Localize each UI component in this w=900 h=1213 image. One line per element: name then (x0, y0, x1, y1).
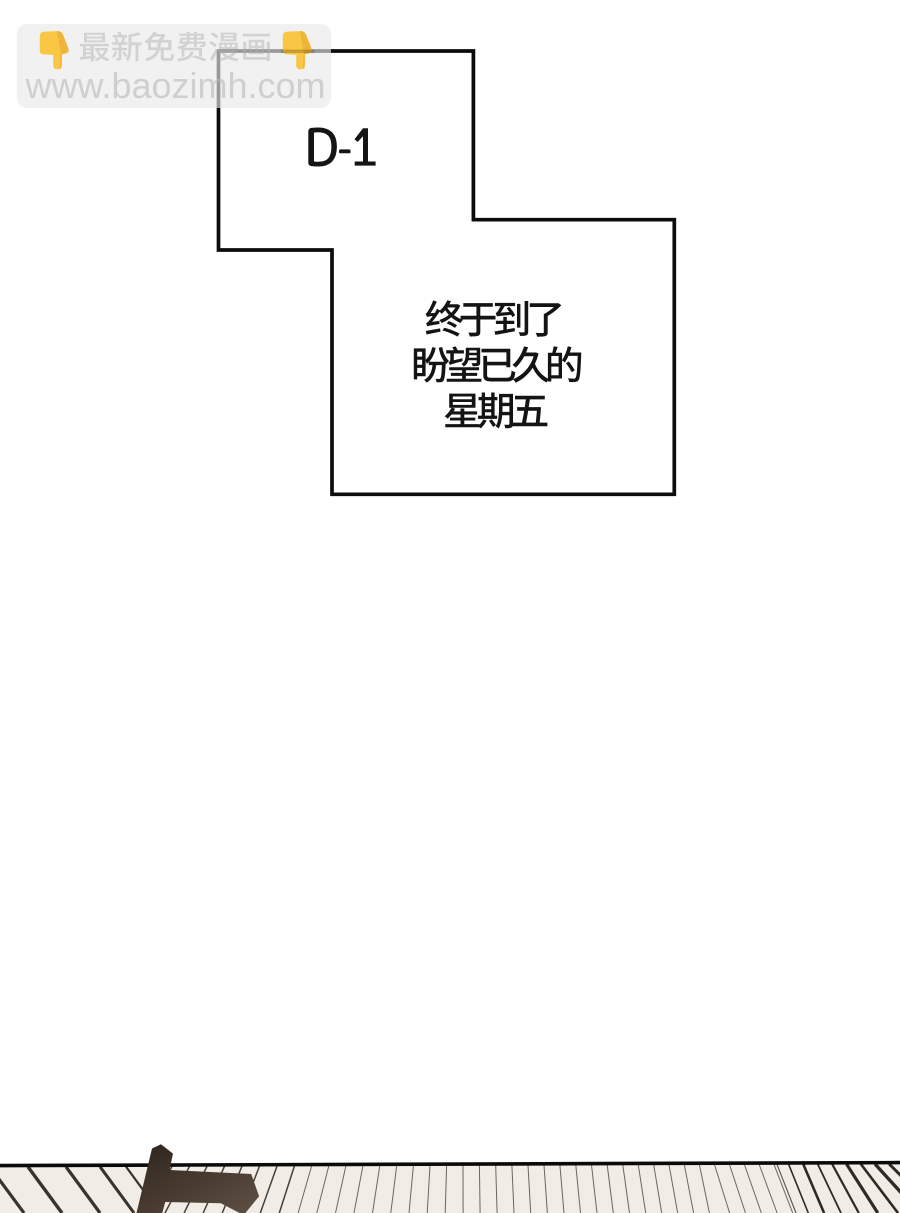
svg-text:www.baozimh.com: www.baozimh.com (24, 65, 325, 106)
